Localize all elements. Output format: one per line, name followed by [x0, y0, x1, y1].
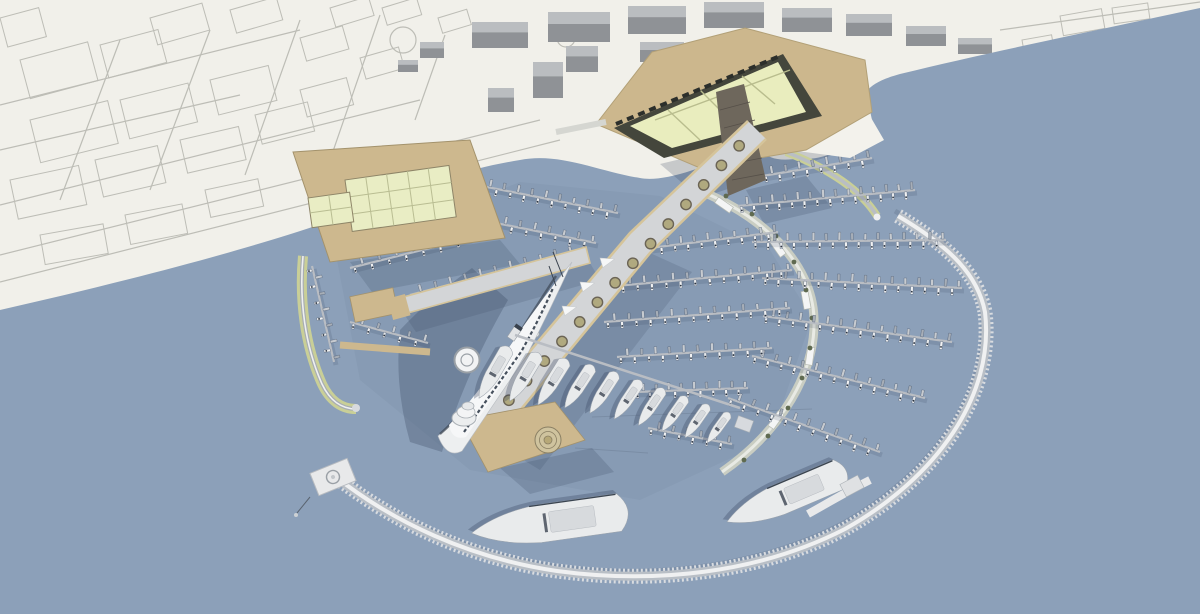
boat-hull — [684, 308, 687, 315]
boat-hull — [799, 234, 802, 241]
boat — [654, 347, 657, 354]
boat-hull — [742, 304, 745, 311]
boat — [830, 282, 833, 290]
boat — [910, 182, 913, 190]
boat — [676, 354, 679, 360]
boat-hull — [735, 313, 738, 320]
boat — [812, 315, 815, 322]
boat — [735, 313, 738, 320]
boat-hull — [877, 233, 880, 240]
boat-hull — [851, 233, 854, 240]
deck-circle — [610, 278, 620, 288]
boat-hull — [713, 306, 716, 313]
boat — [904, 278, 907, 284]
boat — [851, 273, 854, 281]
boat-hull — [784, 301, 787, 307]
boat — [765, 204, 768, 210]
boat-hull — [859, 187, 862, 194]
boat-hull — [841, 197, 844, 204]
boat — [641, 311, 644, 318]
boat-hull — [649, 319, 652, 326]
boat-mast — [951, 292, 953, 294]
boat — [799, 234, 802, 241]
boat — [633, 357, 636, 364]
boat — [892, 193, 895, 200]
building-roof — [566, 46, 598, 56]
boat-hull — [770, 302, 773, 309]
boat-hull — [640, 348, 643, 354]
boat — [778, 203, 781, 210]
boat-mast — [858, 288, 860, 290]
boat — [864, 234, 867, 240]
boat-hull — [816, 200, 819, 207]
boat — [818, 242, 821, 249]
boat-hull — [777, 280, 780, 287]
boat — [847, 189, 850, 195]
boat — [957, 280, 960, 287]
boat-hull — [834, 189, 837, 196]
boat-hull — [778, 203, 781, 210]
causeway-tip — [874, 214, 881, 221]
boat — [649, 429, 652, 435]
boat — [760, 350, 763, 356]
boat-hull — [897, 286, 900, 293]
boat — [796, 192, 799, 200]
boat-hull — [812, 315, 815, 322]
boat-hull — [883, 242, 886, 249]
boat-hull — [897, 184, 900, 191]
boat-hull — [766, 273, 769, 280]
boat-hull — [626, 348, 629, 355]
boat — [660, 247, 663, 254]
boat-hull — [662, 355, 665, 362]
boat — [700, 270, 703, 278]
boat-hull — [718, 381, 721, 388]
boat — [778, 310, 781, 316]
boat-hull — [670, 309, 673, 316]
boat — [797, 271, 800, 279]
building-roof — [704, 2, 764, 12]
boat-hull — [621, 322, 624, 329]
boat-hull — [870, 284, 873, 291]
boat-hull — [685, 272, 688, 279]
boat — [780, 243, 783, 249]
boat — [640, 348, 643, 354]
boat-hull — [679, 236, 682, 244]
boat — [859, 187, 862, 194]
boat-mast — [858, 245, 860, 247]
boat — [877, 233, 880, 240]
boat — [903, 232, 906, 239]
boat-hull — [756, 304, 759, 310]
boat — [935, 241, 938, 248]
boat-hull — [744, 381, 747, 387]
tree — [792, 260, 797, 265]
boat-hull — [886, 334, 889, 342]
boat — [844, 283, 847, 289]
boat-hull — [957, 280, 960, 287]
boat-hull — [654, 347, 657, 354]
boat — [777, 280, 780, 287]
deck-circle — [681, 199, 691, 209]
boat — [767, 243, 770, 250]
boat — [743, 267, 746, 274]
boat-hull — [643, 275, 646, 282]
boat-hull — [904, 192, 907, 200]
boat-hull — [767, 243, 770, 250]
boat — [699, 306, 702, 314]
boat-hull — [797, 271, 800, 279]
boat — [851, 233, 854, 240]
boat-hull — [845, 242, 848, 250]
boat-hull — [825, 233, 828, 240]
deck-circle — [645, 238, 655, 248]
buoy — [294, 513, 298, 517]
boat — [923, 287, 926, 294]
boat-hull — [714, 269, 717, 276]
boat-hull — [851, 273, 854, 281]
boat-hull — [729, 269, 732, 275]
boat-hull — [743, 267, 746, 274]
boat — [897, 184, 900, 191]
boat — [664, 318, 667, 324]
boat — [885, 184, 888, 191]
boat — [685, 272, 688, 279]
boat-hull — [857, 284, 860, 291]
stern-tier-3 — [462, 402, 474, 410]
boat-hull — [931, 279, 934, 285]
boat — [696, 345, 699, 352]
boat — [679, 236, 682, 244]
boat-hull — [718, 352, 721, 359]
boat — [786, 263, 789, 269]
boat — [816, 200, 819, 207]
boat-hull — [934, 332, 937, 339]
boat — [832, 242, 835, 248]
boat — [907, 329, 910, 335]
boat — [803, 281, 806, 288]
deck-circle — [575, 317, 585, 327]
boat-hull — [796, 192, 799, 200]
deck-circle — [716, 160, 726, 170]
boat — [692, 316, 695, 322]
boat — [651, 284, 654, 291]
boat — [694, 280, 697, 286]
boat — [728, 306, 731, 312]
boat — [817, 282, 820, 288]
boat-hull — [693, 382, 696, 389]
boat-mast — [690, 357, 692, 359]
boat — [679, 281, 682, 288]
boat — [786, 233, 789, 241]
boat-hull — [824, 272, 827, 280]
boat — [727, 239, 730, 245]
boat-hull — [772, 264, 775, 271]
boat-hull — [892, 193, 895, 200]
boat-hull — [633, 357, 636, 364]
boat — [839, 319, 842, 326]
boat-hull — [711, 343, 714, 350]
boat — [648, 356, 651, 362]
boat — [759, 196, 762, 203]
boat — [834, 189, 837, 196]
boat — [838, 232, 841, 240]
boat — [909, 241, 912, 248]
building-roof — [398, 60, 418, 65]
deck-circle — [734, 141, 744, 151]
boat — [910, 286, 913, 294]
boat — [732, 351, 735, 357]
boat-hull — [687, 244, 690, 251]
boat — [806, 242, 809, 248]
building-roof — [533, 62, 563, 76]
deck-circle — [663, 219, 673, 229]
boat — [756, 304, 759, 310]
boat-hull — [764, 311, 767, 318]
boat-hull — [864, 275, 867, 282]
boat — [857, 242, 860, 249]
boat-hull — [877, 277, 880, 283]
ship-helipad — [455, 348, 480, 373]
boat — [944, 279, 947, 287]
boat-hull — [838, 232, 841, 240]
boat — [824, 272, 827, 280]
boat — [628, 313, 631, 319]
boat — [812, 233, 815, 241]
boat — [891, 276, 894, 283]
boat — [700, 242, 703, 248]
boat-hull — [917, 277, 920, 284]
boat — [791, 202, 794, 208]
boat — [864, 275, 867, 282]
marina-masterplan-rendering — [0, 0, 1200, 614]
boat — [619, 358, 622, 364]
boat-hull — [786, 233, 789, 241]
boat-hull — [839, 319, 842, 326]
boat — [877, 277, 880, 283]
boat-hull — [655, 311, 658, 318]
boat-hull — [929, 232, 932, 239]
boat — [951, 288, 954, 295]
boat — [682, 345, 685, 352]
boat-hull — [889, 233, 892, 239]
boat — [917, 277, 920, 284]
boat — [866, 195, 869, 202]
boat-hull — [812, 233, 815, 241]
boat — [773, 225, 776, 232]
boat-hull — [884, 285, 887, 293]
boat — [803, 201, 806, 208]
boat-hull — [859, 330, 862, 338]
boat-hull — [896, 241, 899, 249]
boat — [941, 233, 944, 240]
deck-circle — [557, 336, 567, 346]
boat — [711, 343, 714, 350]
boat — [771, 194, 774, 202]
boat — [772, 264, 775, 271]
building-roof — [548, 12, 610, 24]
boat-hull — [706, 232, 709, 240]
boat — [670, 309, 673, 316]
boat — [704, 353, 707, 359]
deck-circle — [628, 258, 638, 268]
boat — [753, 205, 756, 212]
boat — [884, 285, 887, 293]
boat — [693, 382, 696, 389]
boat-hull — [786, 263, 789, 269]
boat — [606, 323, 609, 329]
boat — [784, 301, 787, 307]
boat — [811, 273, 814, 280]
shed — [308, 192, 354, 228]
boat — [662, 355, 665, 362]
boat-hull — [847, 189, 850, 195]
boat-hull — [891, 276, 894, 283]
boat-hull — [784, 164, 787, 171]
marina-rendering-canvas — [0, 0, 1200, 614]
boat-hull — [803, 201, 806, 208]
boat — [684, 308, 687, 315]
building-roof — [420, 42, 444, 48]
building-roof — [846, 14, 892, 23]
boat — [721, 314, 724, 320]
boat — [749, 312, 752, 318]
boat-hull — [613, 313, 616, 320]
boat-hull — [766, 341, 769, 347]
boat — [889, 233, 892, 239]
boat — [649, 319, 652, 326]
boat — [746, 350, 749, 357]
tree — [724, 194, 729, 199]
boat-hull — [904, 278, 907, 284]
boat — [837, 274, 840, 281]
boat-hull — [699, 306, 702, 314]
boat-hull — [725, 390, 728, 397]
boat — [896, 241, 899, 249]
boat — [739, 343, 742, 349]
boat-hull — [864, 234, 867, 240]
boat — [744, 381, 747, 387]
boat-hull — [944, 279, 947, 287]
boat — [870, 284, 873, 291]
boat-hull — [811, 273, 814, 280]
spiral-ramp-core — [544, 436, 552, 444]
boat — [678, 317, 681, 324]
boat-hull — [857, 242, 860, 249]
boat — [722, 277, 725, 283]
boat-hull — [724, 343, 727, 350]
boat — [870, 242, 873, 250]
boat-hull — [910, 182, 913, 190]
boat-hull — [641, 311, 644, 318]
tree — [766, 434, 771, 439]
boat-hull — [923, 287, 926, 294]
boat — [687, 244, 690, 251]
boat — [833, 165, 836, 173]
boat — [780, 272, 783, 278]
boat-hull — [773, 225, 776, 232]
boat — [751, 275, 754, 281]
boat-hull — [651, 284, 654, 291]
boat — [730, 381, 733, 388]
boat — [733, 231, 736, 237]
boat — [764, 311, 767, 318]
boat — [753, 236, 756, 242]
boat-hull — [730, 381, 733, 388]
boat-mast — [764, 282, 766, 284]
boat-hull — [922, 241, 925, 249]
boat — [754, 243, 757, 249]
boat — [753, 341, 756, 348]
boat — [934, 332, 937, 339]
boat-hull — [903, 232, 906, 239]
boat — [665, 282, 668, 288]
boat — [793, 243, 796, 250]
building-roof — [782, 8, 832, 18]
boat — [655, 311, 658, 318]
boat — [766, 273, 769, 280]
boat — [705, 382, 708, 389]
boat-hull — [937, 288, 940, 296]
boat-hull — [818, 242, 821, 249]
boat-hull — [837, 274, 840, 281]
tree — [786, 406, 791, 411]
boat-hull — [759, 196, 762, 203]
boat — [729, 269, 732, 275]
boat-hull — [910, 286, 913, 294]
boat — [706, 232, 709, 240]
boat — [818, 325, 821, 331]
boat-hull — [705, 382, 708, 389]
boat — [742, 304, 745, 311]
boat — [725, 390, 728, 397]
boat-hull — [832, 242, 835, 248]
boat-hull — [728, 306, 731, 312]
boat — [668, 347, 671, 353]
tree — [808, 346, 813, 351]
boat — [621, 322, 624, 329]
boat-hull — [771, 194, 774, 202]
boat — [784, 164, 787, 171]
boat — [712, 390, 715, 396]
boat — [690, 354, 693, 361]
building-roof — [628, 6, 686, 17]
boat — [883, 242, 886, 249]
boat-hull — [907, 329, 910, 335]
boat — [714, 269, 717, 276]
boat — [857, 284, 860, 291]
boat-hull — [668, 347, 671, 353]
boat — [937, 288, 940, 296]
boat-hull — [870, 242, 873, 250]
boat — [822, 189, 825, 197]
boat — [791, 280, 794, 286]
boat — [915, 233, 918, 239]
boat — [635, 320, 638, 326]
boat-hull — [679, 281, 682, 288]
boat — [766, 341, 769, 347]
boat — [613, 313, 616, 320]
boat-hull — [830, 282, 833, 290]
boat-hull — [833, 165, 836, 173]
building-roof — [488, 88, 514, 98]
boat-hull — [915, 233, 918, 239]
boat-hull — [671, 272, 674, 279]
boat — [886, 334, 889, 342]
boat-hull — [696, 345, 699, 352]
boat-mast — [767, 247, 769, 249]
boat-hull — [935, 241, 938, 248]
